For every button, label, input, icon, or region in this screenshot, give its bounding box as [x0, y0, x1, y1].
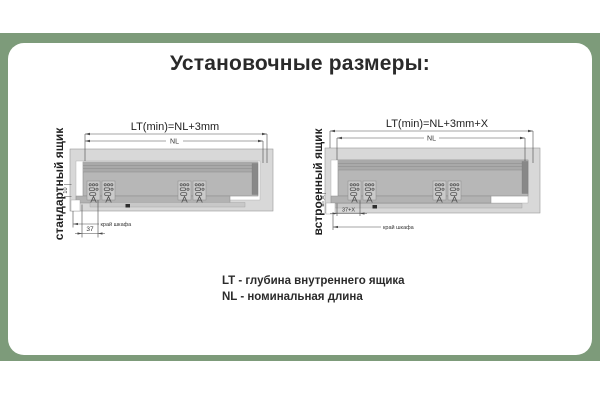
builtin-drawer-diagram: LT(min)=NL+3mm+X NL X 37+X край шкафа	[315, 115, 550, 255]
cabinet-edge-label: край шкафа	[383, 224, 415, 231]
offset-dimension-label: 37+X	[342, 208, 355, 214]
page-background: Установочные размеры: стандартный ящик в…	[0, 0, 600, 400]
page-title: Установочные размеры:	[0, 52, 600, 76]
height-dimension-label: 10	[63, 187, 69, 193]
cabinet-edge-label: край шкафа	[101, 221, 133, 228]
drawer-slide-assembly	[71, 162, 258, 211]
stopper-pin	[373, 205, 378, 209]
lt-formula-label: LT(min)=NL+3mm+X	[386, 118, 489, 130]
legend-line-lt: LT - глубина внутреннего ящика	[222, 273, 405, 289]
cabinet-front-corner	[71, 200, 80, 211]
cabinet-front-corner	[326, 203, 335, 214]
rear-bracket	[522, 162, 528, 194]
legend-line-nl: NL - номинальная длина	[222, 289, 405, 305]
stopper-pin	[126, 204, 131, 208]
recess-dimension-label: X	[321, 196, 325, 202]
nl-dimension-label: NL	[170, 139, 179, 146]
standard-drawer-diagram: LT(min)=NL+3mm NL 10 край шкафа 37	[55, 115, 290, 255]
rear-bracket	[252, 164, 258, 195]
drawer-slide-assembly	[326, 160, 528, 214]
nl-dimension-label: NL	[427, 136, 436, 143]
lt-formula-label: LT(min)=NL+3mm	[131, 121, 219, 133]
offset-dimension-label: 37	[86, 226, 94, 233]
legend: LT - глубина внутреннего ящика NL - номи…	[222, 273, 405, 305]
